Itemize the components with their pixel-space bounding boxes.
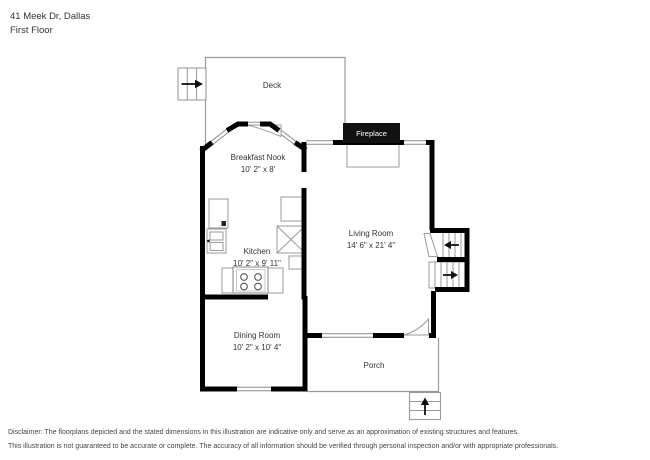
room-name: Breakfast Nook xyxy=(231,152,286,164)
room-dims: 10' 2" x 8' xyxy=(231,164,286,176)
kitchen-counter-top xyxy=(209,199,228,228)
fireplace-label: Fireplace xyxy=(356,129,387,138)
porch-door-swing xyxy=(404,319,429,335)
lower-stairs-icon xyxy=(429,262,465,288)
stairs-arrow-left-icon xyxy=(444,241,459,249)
wall-bay-corner-2 xyxy=(227,124,248,131)
kitchen-cabinet-x xyxy=(277,226,305,253)
fireplace: Fireplace xyxy=(343,123,400,143)
room-name: Dining Room xyxy=(233,330,281,342)
room-label-deck: Deck xyxy=(263,80,281,92)
floorplan-drawing xyxy=(0,0,650,460)
room-dims: 14' 6" x 21' 4" xyxy=(347,240,395,252)
room-label-kitchen: Kitchen 10' 2" x 9' 11" xyxy=(233,246,281,270)
room-label-breakfast-nook: Breakfast Nook 10' 2" x 8' xyxy=(231,152,286,176)
disclaimer-line-2: This illustration is not guaranteed to b… xyxy=(8,443,558,450)
room-name: Living Room xyxy=(347,228,395,240)
room-dims: 10' 2" x 9' 11" xyxy=(233,258,281,270)
room-label-living-room: Living Room 14' 6" x 21' 4" xyxy=(347,228,395,252)
fireplace-hearth xyxy=(347,143,399,167)
disclaimer-line-1: Disclaimer: The floorplans depicted and … xyxy=(8,429,519,436)
wall-bay-corner-1 xyxy=(201,143,212,152)
upper-stairs-icon xyxy=(443,233,461,257)
room-name: Porch xyxy=(364,360,385,372)
room-label-porch: Porch xyxy=(364,360,385,372)
room-dims: 10' 2" x 10' 4" xyxy=(233,342,281,354)
room-label-dining-room: Dining Room 10' 2" x 10' 4" xyxy=(233,330,281,354)
room-name: Kitchen xyxy=(233,246,281,258)
room-name: Deck xyxy=(263,80,281,92)
stairs-door-swing xyxy=(424,234,438,257)
porch-stairs-icon xyxy=(410,393,441,420)
deck-stairs-icon xyxy=(178,68,206,100)
kitchen-fridge xyxy=(281,197,304,221)
kitchen-stove xyxy=(222,267,283,293)
floorplan-page: 41 Meek Dr, Dallas First Floor xyxy=(0,0,650,460)
kitchen-sink xyxy=(207,229,226,253)
